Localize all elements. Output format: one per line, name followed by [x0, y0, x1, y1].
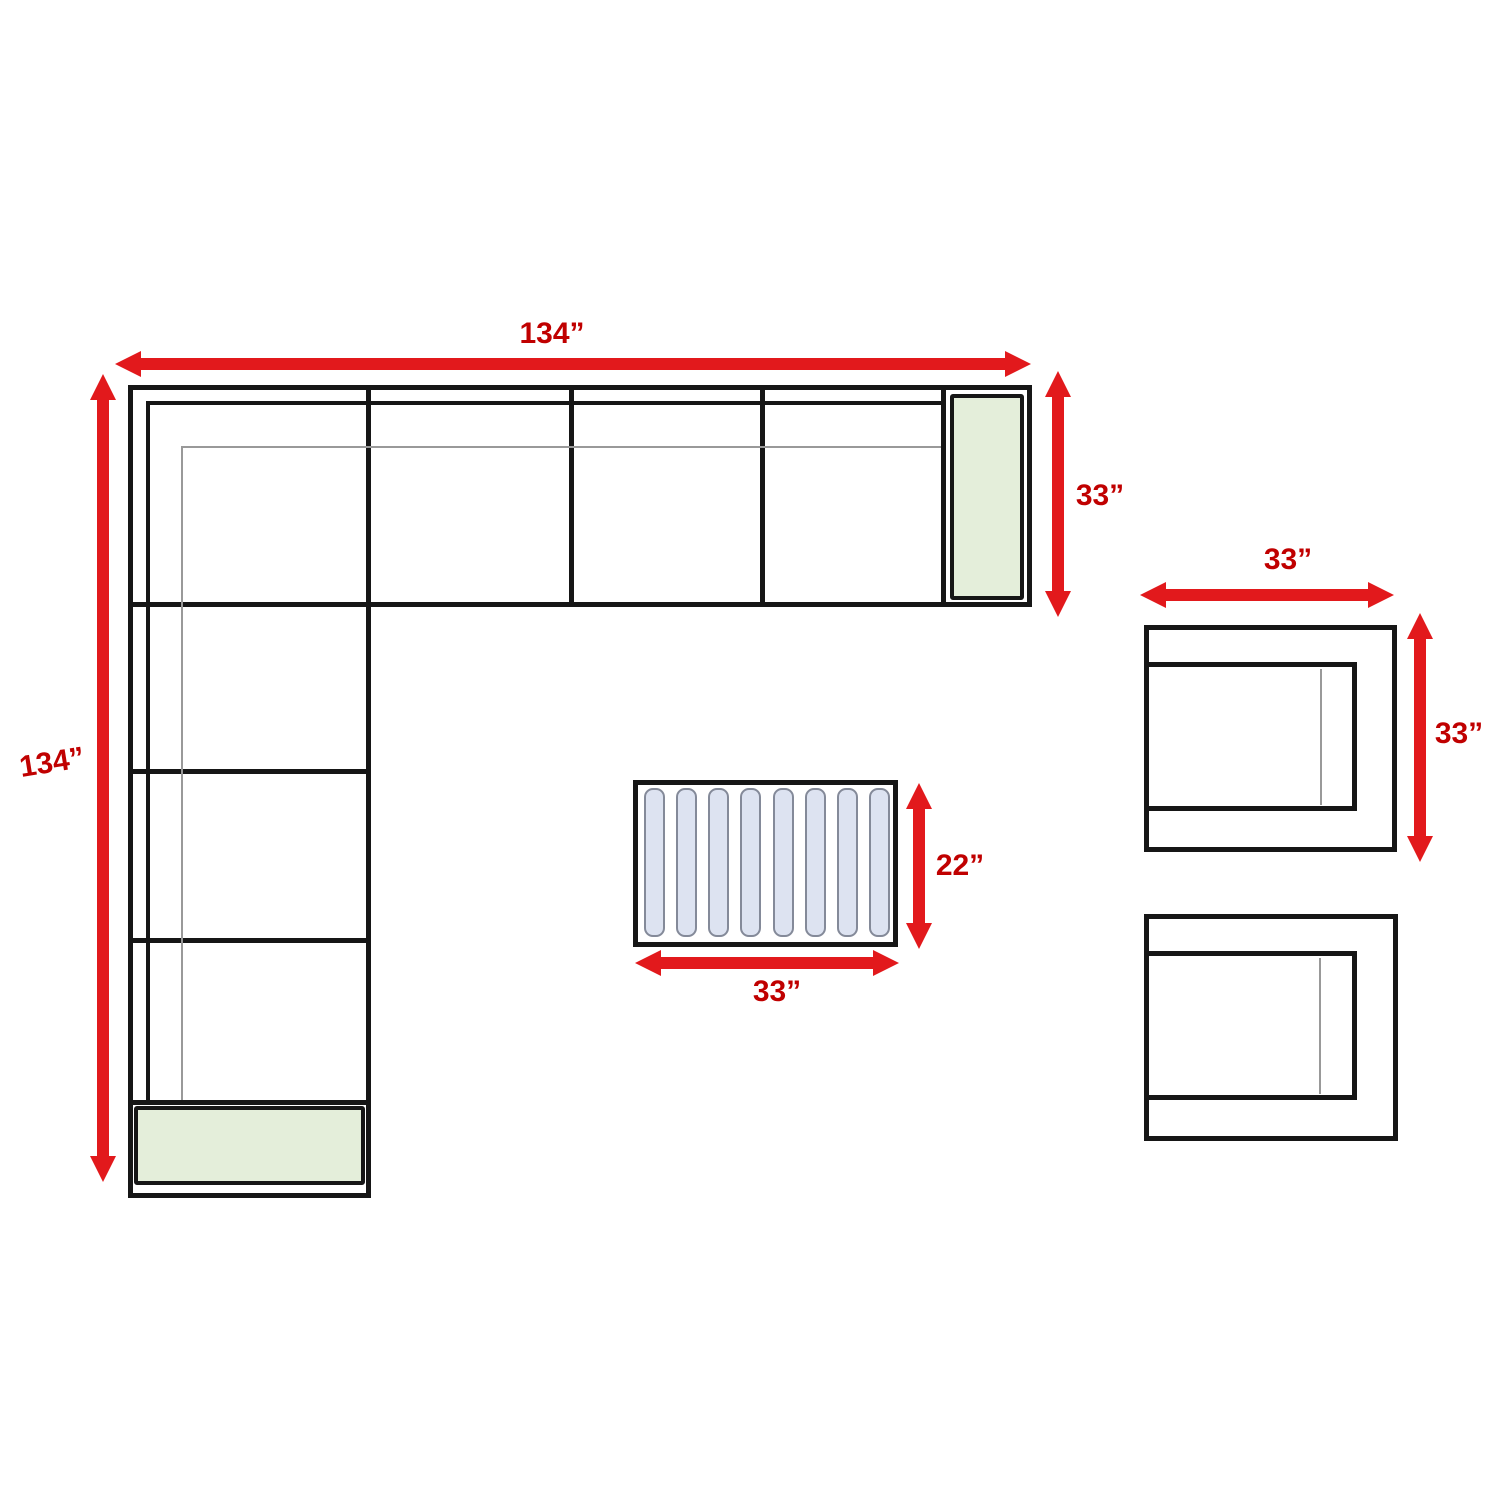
seat-divider: [128, 769, 371, 774]
armchair-bottom-back-cushion-line: [1319, 958, 1321, 1094]
dimension-arrow-sofa-width: [115, 351, 1031, 377]
dimension-label-sofa-depth: 33”: [1060, 481, 1140, 511]
seat-cushion-line-horizontal: [181, 446, 941, 448]
coffee-table-slat: [869, 788, 890, 937]
floor-plan-diagram: 134” 134” 33” 33” 33” 22” 33”: [0, 0, 1500, 1500]
backrest-line-vertical: [146, 401, 150, 1100]
armchair-top-seat: [1144, 662, 1357, 811]
dimension-arrow-chair-width: [1140, 582, 1394, 608]
coffee-table-slat: [837, 788, 858, 937]
coffee-table-slat: [805, 788, 826, 937]
coffee-table-slat: [708, 788, 729, 937]
backrest-line-horizontal: [146, 401, 941, 405]
seat-divider: [128, 1100, 371, 1105]
armrest-end-cushion-bottom: [134, 1106, 365, 1185]
coffee-table-slat: [740, 788, 761, 937]
sectional-sofa-left-section-outline: [128, 385, 371, 1198]
armchair-bottom-seat: [1144, 951, 1357, 1100]
dimension-label-chair-depth: 33”: [1419, 719, 1499, 749]
dimension-label-table-depth: 22”: [920, 851, 1000, 881]
coffee-table-slat: [773, 788, 794, 937]
dimension-label-table-width: 33”: [737, 977, 817, 1007]
seat-divider: [941, 385, 946, 607]
coffee-table-slats: [644, 788, 890, 937]
coffee-table-slat: [676, 788, 697, 937]
dimension-label-sofa-height: 134”: [2, 741, 102, 786]
seat-divider: [128, 938, 371, 943]
seat-cushion-line-vertical: [181, 446, 183, 1100]
dimension-arrow-table-width: [635, 950, 899, 976]
dimension-label-chair-width: 33”: [1248, 545, 1328, 575]
dimension-arrow-sofa-height: [90, 374, 116, 1182]
dimension-label-sofa-width: 134”: [492, 319, 612, 349]
seat-divider: [569, 385, 574, 607]
armrest-end-cushion-right: [950, 394, 1024, 600]
seat-divider: [760, 385, 765, 607]
coffee-table-slat: [644, 788, 665, 937]
armchair-top-back-cushion-line: [1320, 669, 1322, 805]
